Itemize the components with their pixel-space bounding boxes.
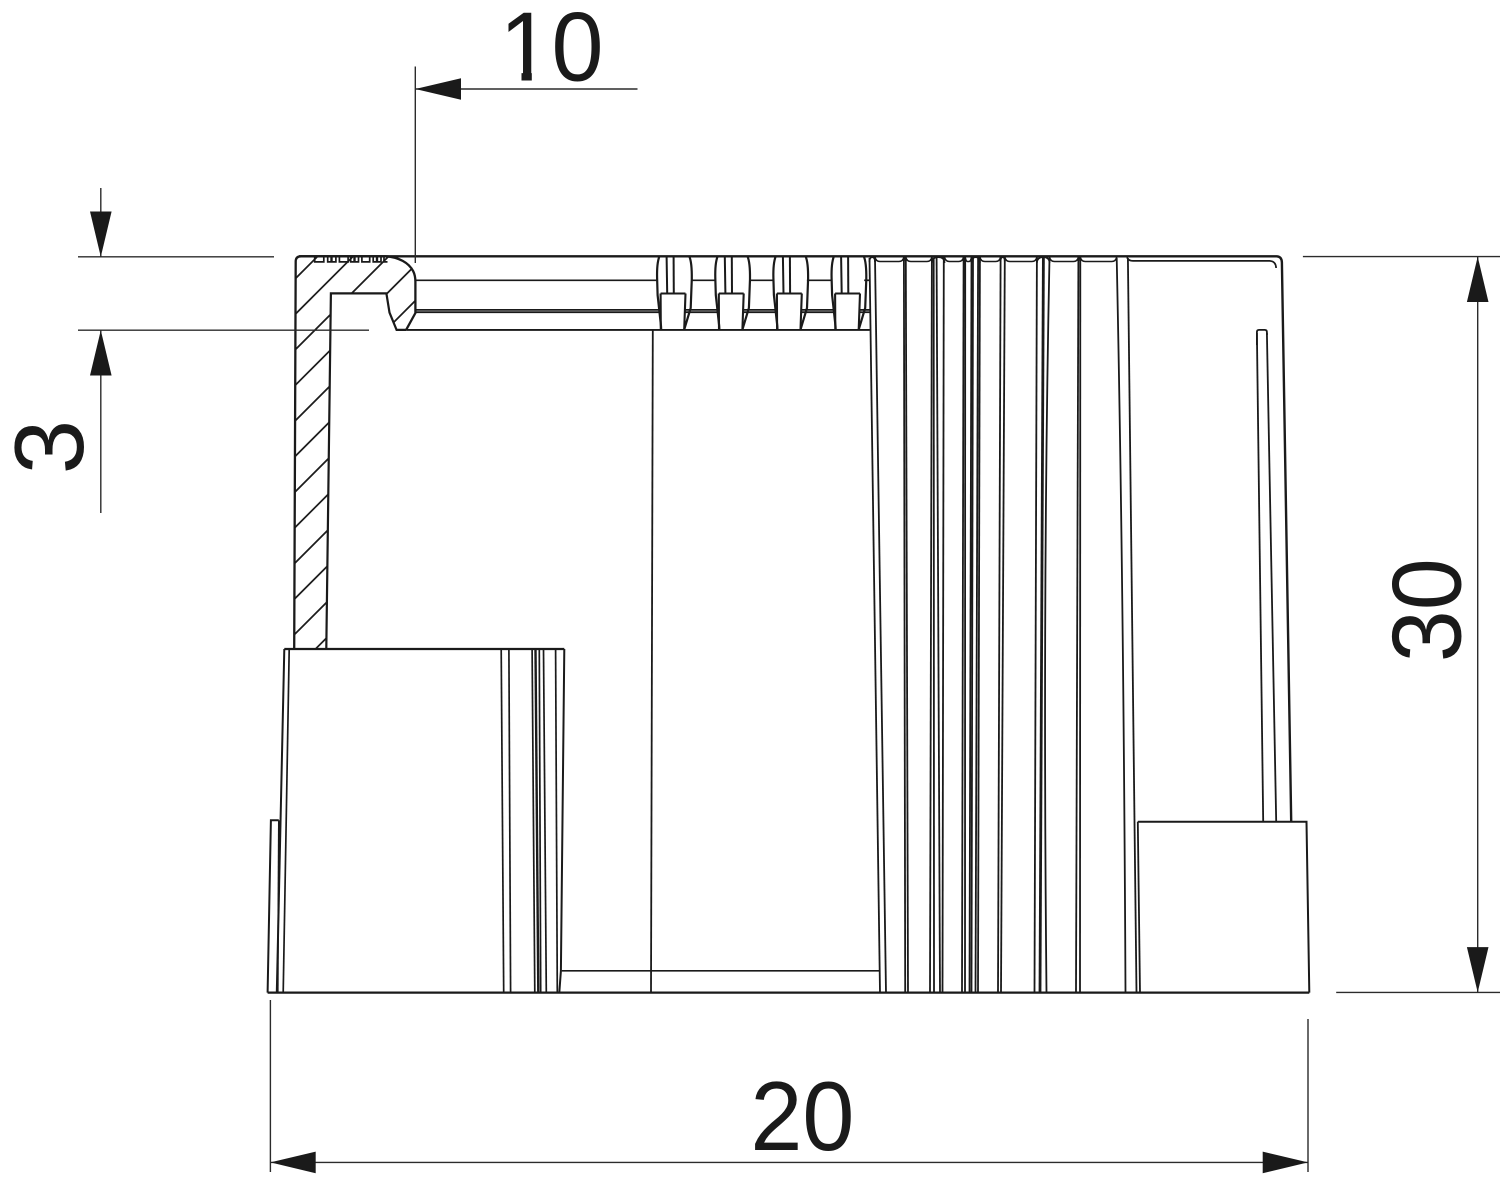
svg-text:10: 10 bbox=[500, 0, 604, 101]
svg-text:3: 3 bbox=[0, 420, 104, 475]
svg-text:30: 30 bbox=[1372, 558, 1482, 662]
svg-text:20: 20 bbox=[750, 1061, 854, 1171]
